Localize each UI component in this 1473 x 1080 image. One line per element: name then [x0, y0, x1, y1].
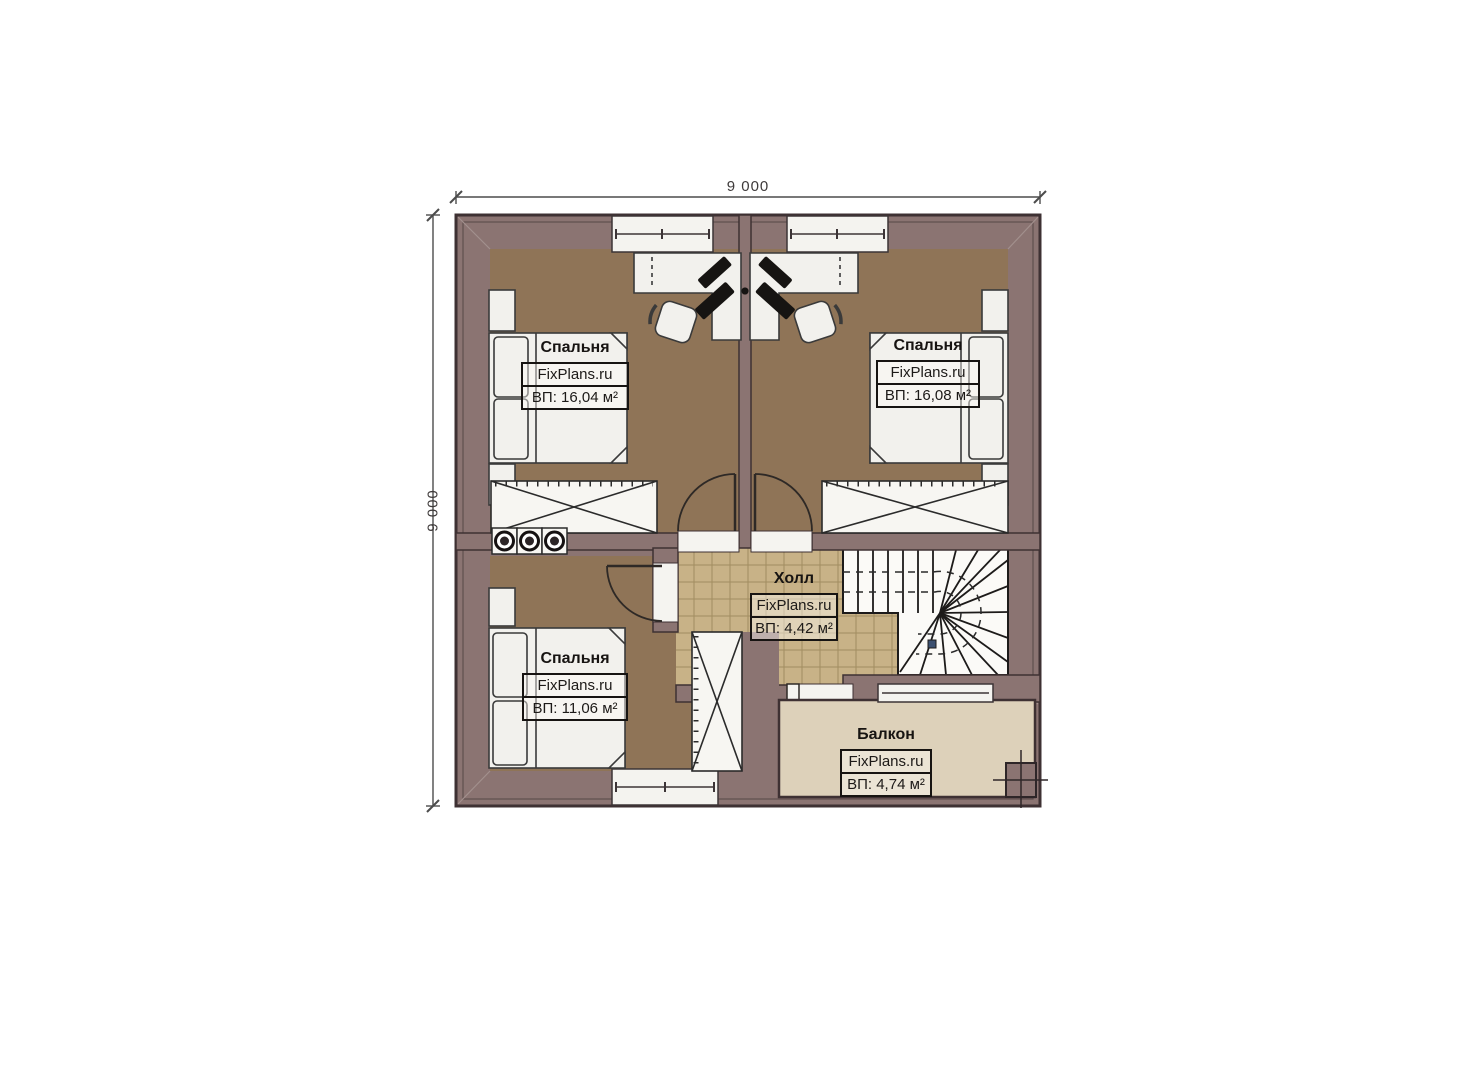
watermark: FixPlans.ru: [524, 675, 626, 698]
room-name: Холл: [774, 570, 814, 588]
wardrobe-bottom: [692, 632, 742, 771]
room-area: ВП: 16,08 м²: [878, 385, 978, 406]
wardrobe-right: [822, 481, 1008, 533]
wall-chunk: [742, 632, 779, 771]
window-balcony: [878, 684, 993, 702]
watermark: FixPlans.ru: [752, 595, 836, 618]
room-label-bedroom-top-left: Спальня FixPlans.ru ВП: 16,04 м²: [521, 339, 629, 410]
watermark: FixPlans.ru: [523, 364, 627, 387]
room-name: Спальня: [540, 650, 609, 668]
stair-marker: [928, 640, 936, 648]
nightstand: [982, 290, 1008, 331]
window-top-left: [612, 216, 713, 252]
room-name: Спальня: [540, 339, 609, 357]
watermark: FixPlans.ru: [878, 362, 978, 385]
room-area: ВП: 16,04 м²: [523, 387, 627, 408]
room-info-box: FixPlans.ru ВП: 4,74 м²: [840, 749, 932, 797]
room-area: ВП: 11,06 м²: [524, 698, 626, 719]
room-info-box: FixPlans.ru ВП: 16,04 м²: [521, 362, 629, 410]
round-fixtures: [492, 528, 567, 554]
room-name: Спальня: [893, 337, 962, 355]
window-top-right: [787, 216, 888, 252]
room-area: ВП: 4,74 м²: [842, 774, 930, 795]
room-info-box: FixPlans.ru ВП: 4,42 м²: [750, 593, 838, 641]
floor-plan-drawing: [0, 0, 1473, 1080]
room-name: Балкон: [857, 726, 915, 744]
nightstand: [489, 588, 515, 626]
wall-mid-right: [812, 533, 1040, 550]
pillow: [969, 399, 1003, 459]
room-label-hall: Холл FixPlans.ru ВП: 4,42 м²: [750, 570, 838, 641]
wardrobe-left: [491, 481, 657, 533]
room-label-bedroom-bottom: Спальня FixPlans.ru ВП: 11,06 м²: [522, 650, 628, 721]
room-label-bedroom-top-right: Спальня FixPlans.ru ВП: 16,08 м²: [876, 337, 980, 408]
room-label-balcony: Балкон FixPlans.ru ВП: 4,74 м²: [840, 726, 932, 797]
dimension-height-label: 9 000: [425, 461, 442, 561]
room-info-box: FixPlans.ru ВП: 16,08 м²: [876, 360, 980, 408]
room-area: ВП: 4,42 м²: [752, 618, 836, 639]
window-bottom: [612, 769, 718, 805]
watermark: FixPlans.ru: [842, 751, 930, 774]
floor-plan-page: 9 000 9 000 Спальня FixPlans.ru ВП: 16,0…: [0, 0, 1473, 1080]
nightstand: [489, 290, 515, 331]
dimension-width-label: 9 000: [698, 178, 798, 195]
room-info-box: FixPlans.ru ВП: 11,06 м²: [522, 673, 628, 721]
